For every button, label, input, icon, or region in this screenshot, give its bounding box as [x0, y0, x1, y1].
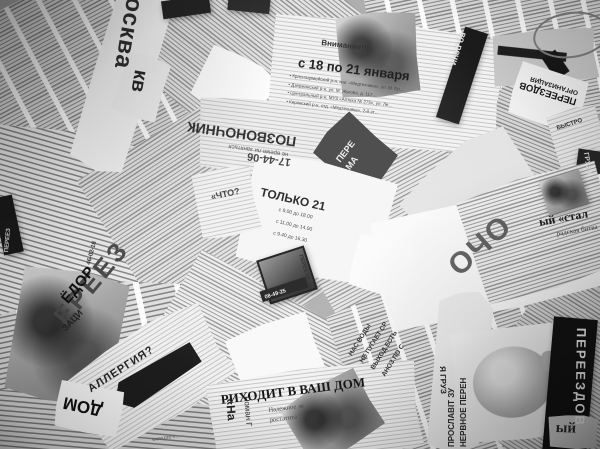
label-pereezdov-vertical: ПЕРЕЕЗДОВ: [571, 328, 588, 427]
newspaper-collage-photo: оскваквВнимание!!!с 18 по 21 января• Кра…: [0, 0, 600, 449]
label-nadezhnoe: Надежное ле ростатита: [268, 402, 306, 427]
label-na-quote: «На: [222, 398, 238, 421]
label-proslavit: ПРОСЛАВІТ ЗУ НЕРВНОЕ ПЕРЕН: [446, 378, 470, 447]
label-kv: кв: [125, 68, 152, 94]
label-yy: ый: [555, 420, 576, 438]
